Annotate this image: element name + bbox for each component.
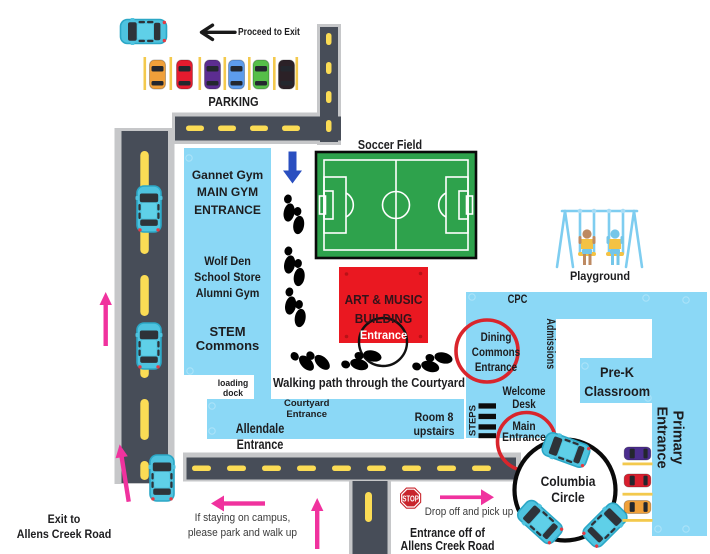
svg-text:STOP: STOP <box>402 494 419 504</box>
